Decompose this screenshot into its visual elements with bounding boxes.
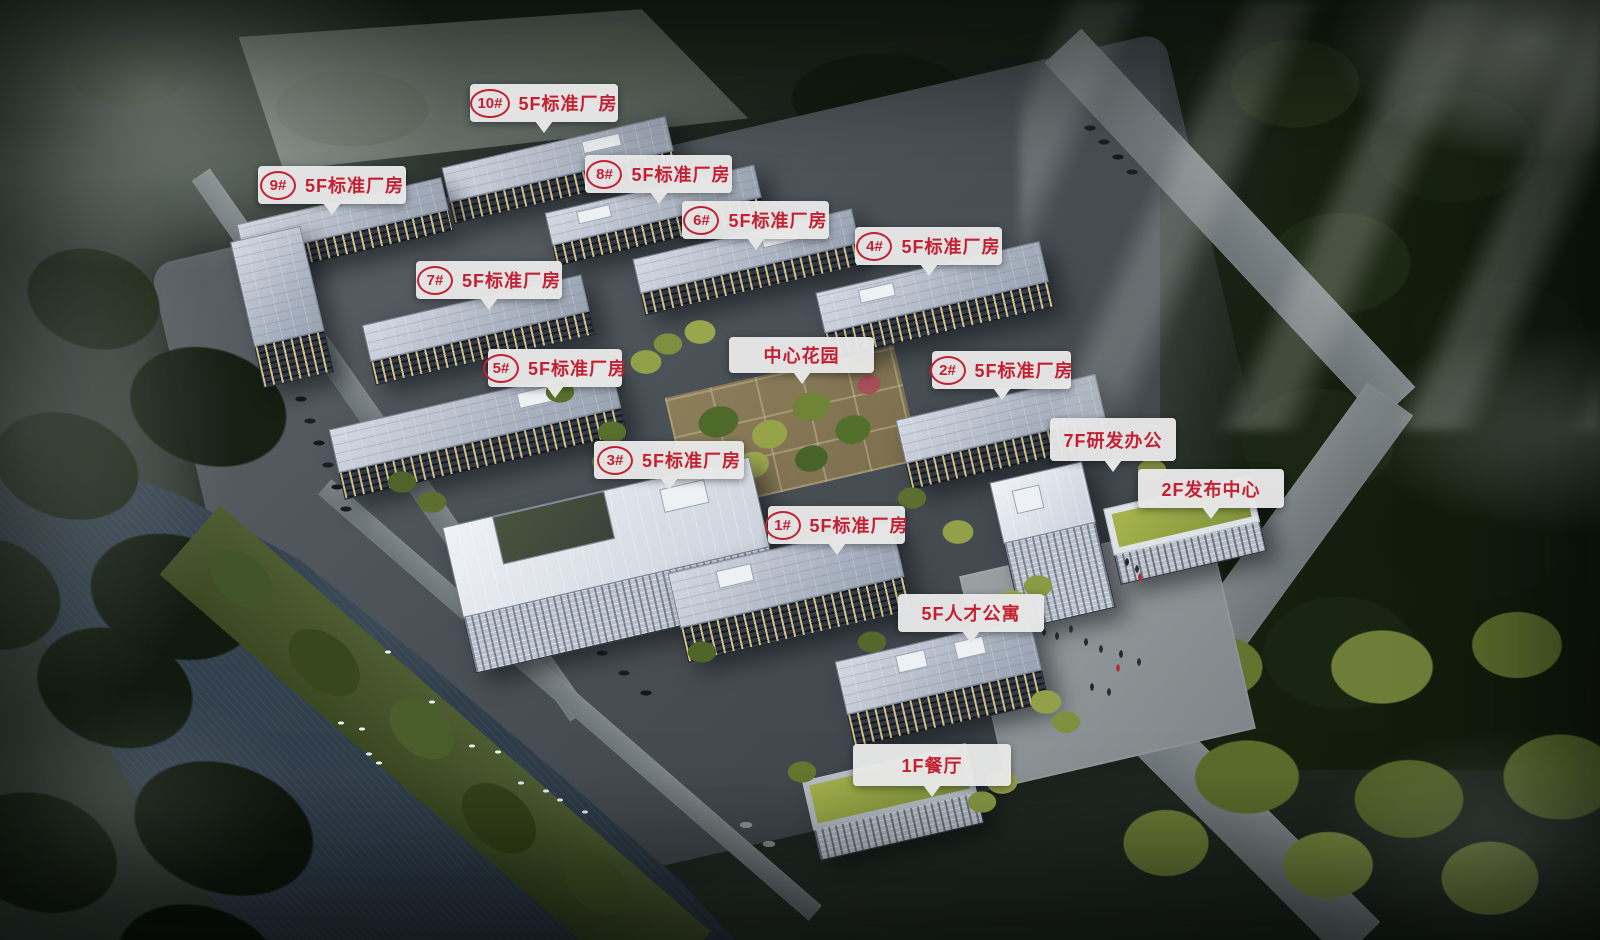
label-building-1: 1# 5F标准厂房: [768, 506, 905, 544]
rooftop-structure: [576, 204, 612, 224]
label-rd-office: 7F研发办公: [1050, 418, 1176, 461]
label-text: 5F标准厂房: [519, 90, 618, 116]
label-text: 中心花园: [764, 342, 840, 368]
label-text: 5F人才公寓: [921, 600, 1020, 626]
building-number-badge: 4#: [856, 232, 892, 261]
label-text: 1F餐厅: [901, 752, 962, 778]
label-text: 5F标准厂房: [901, 233, 1000, 259]
label-building-3: 3# 5F标准厂房: [594, 441, 744, 479]
rooftop-structure: [715, 563, 754, 589]
label-text: 5F标准厂房: [728, 207, 827, 233]
label-text: 5F标准厂房: [462, 267, 561, 293]
label-building-8: 8# 5F标准厂房: [585, 155, 732, 193]
label-canteen: 1F餐厅: [853, 744, 1011, 786]
rooftop-structure: [858, 282, 897, 305]
label-building-6: 6# 5F标准厂房: [682, 201, 829, 239]
building-number-badge: 9#: [260, 171, 296, 200]
label-building-5: 5# 5F标准厂房: [488, 349, 622, 387]
label-building-2: 2# 5F标准厂房: [932, 351, 1071, 389]
building-number-badge: 10#: [470, 89, 509, 118]
label-text: 5F标准厂房: [810, 512, 909, 538]
label-text: 5F标准厂房: [305, 172, 404, 198]
building-number-badge: 1#: [765, 511, 801, 540]
label-text: 5F标准厂房: [631, 161, 730, 187]
label-building-4: 4# 5F标准厂房: [855, 227, 1002, 265]
label-building-9: 9# 5F标准厂房: [258, 166, 406, 204]
label-text: 2F发布中心: [1161, 476, 1260, 502]
label-text: 5F标准厂房: [642, 447, 741, 473]
label-building-7: 7# 5F标准厂房: [416, 261, 562, 299]
label-building-10: 10# 5F标准厂房: [470, 84, 618, 122]
rooftop-structure: [895, 649, 928, 673]
label-text: 5F标准厂房: [975, 357, 1074, 383]
aerial-site-plan: 10# 5F标准厂房 9# 5F标准厂房 8# 5F标准厂房 6# 5F标准厂房…: [0, 0, 1600, 940]
building-number-badge: 8#: [586, 160, 622, 189]
building-number-badge: 7#: [417, 266, 453, 295]
rooftop-structure: [581, 133, 622, 155]
building-number-badge: 2#: [930, 356, 966, 385]
rooftop-structure: [1011, 485, 1044, 515]
label-release-center: 2F发布中心: [1138, 469, 1284, 508]
label-text: 5F标准厂房: [528, 355, 627, 381]
building-number-badge: 6#: [683, 206, 719, 235]
label-central-garden: 中心花园: [729, 337, 874, 373]
building-number-badge: 5#: [483, 354, 519, 383]
label-text: 7F研发办公: [1063, 427, 1162, 453]
label-talent-apartment: 5F人才公寓: [898, 594, 1044, 632]
building-number-badge: 3#: [597, 446, 633, 475]
